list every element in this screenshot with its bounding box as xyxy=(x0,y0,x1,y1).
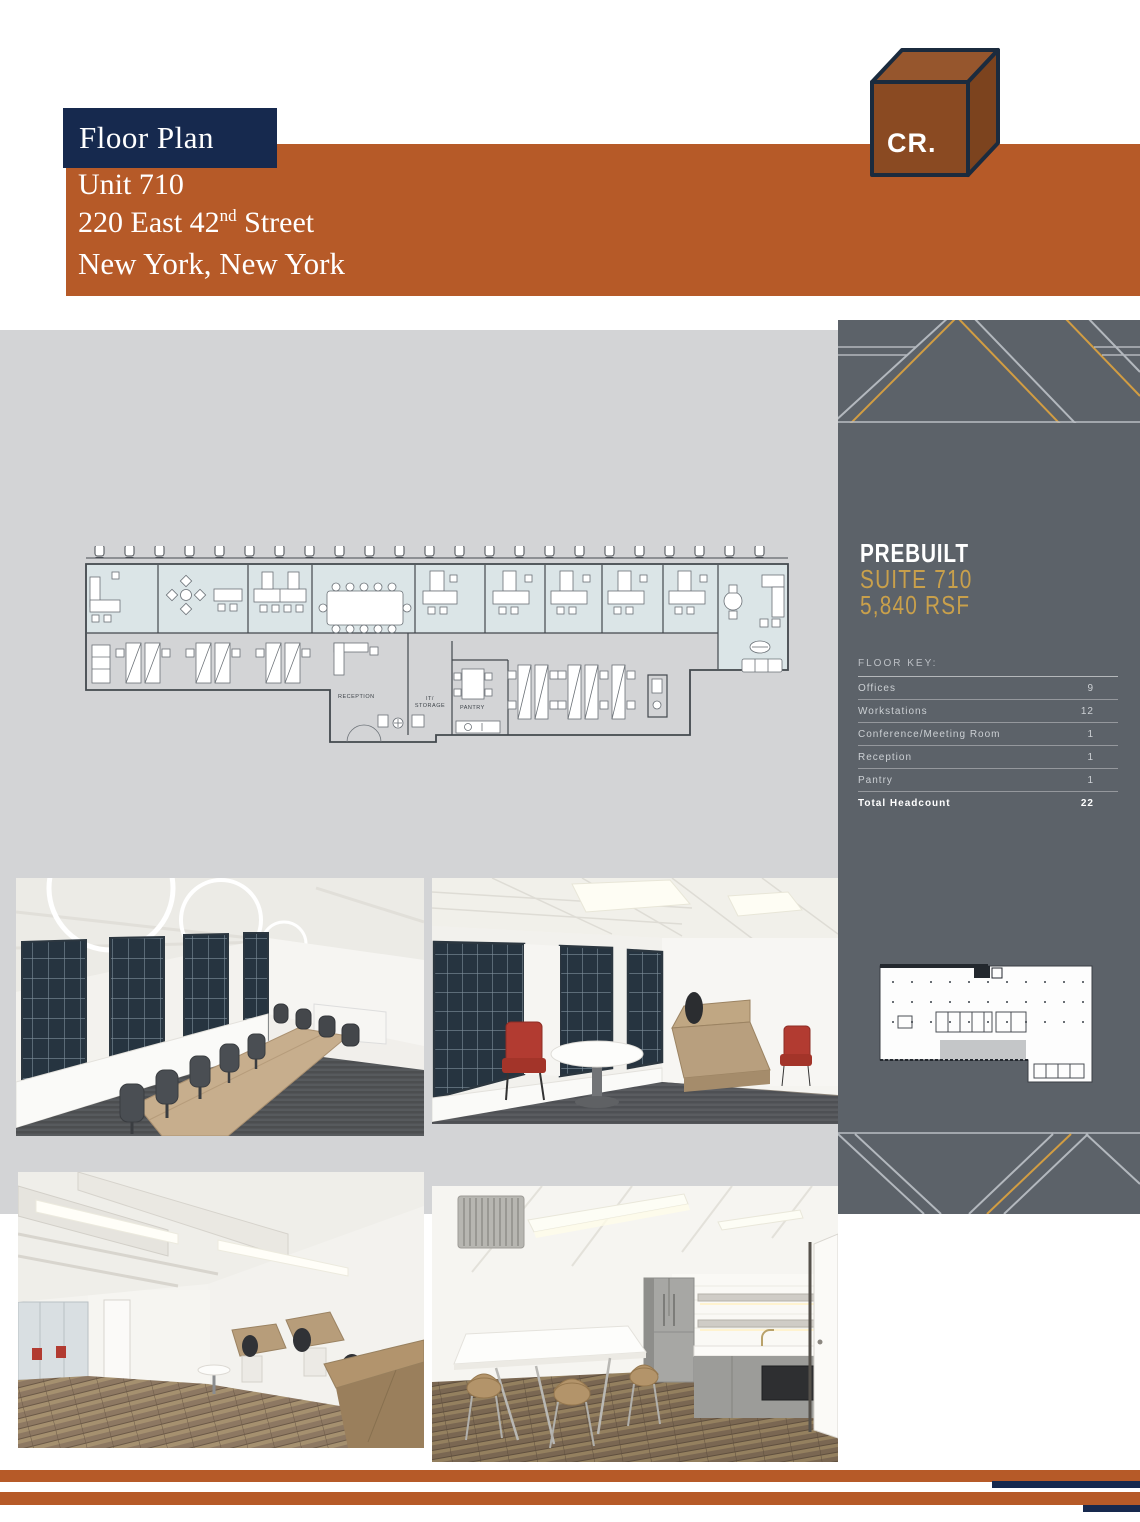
task-chair xyxy=(685,992,703,1024)
glass-wall xyxy=(18,1302,88,1380)
suite-title-block: PREBUILT SUITE 710 5,840 RSF xyxy=(860,540,973,618)
unit-label: Unit 710 xyxy=(78,168,184,202)
photo-open-workspace xyxy=(18,1172,424,1448)
logo-text: CR. xyxy=(887,128,937,158)
prebuilt-label: PREBUILT xyxy=(860,540,973,566)
it-storage-label-2: STORAGE xyxy=(415,703,445,709)
photo-private-office xyxy=(432,878,838,1124)
red-chair-small xyxy=(32,1348,42,1360)
footer-stripe-2 xyxy=(0,1492,1140,1505)
air-vent xyxy=(458,1196,524,1248)
floor-key-total-row: Total Headcount22 xyxy=(858,792,1118,814)
suite-info-sidebar: PREBUILT SUITE 710 5,840 RSF FLOOR KEY: … xyxy=(838,320,1140,1214)
ordinal-suffix: nd xyxy=(220,206,237,225)
street-address: 220 East 42nd Street xyxy=(78,206,314,240)
red-chair-small xyxy=(56,1346,66,1358)
sidebar-top-pattern xyxy=(838,320,1140,423)
suite-rsf: 5,840 RSF xyxy=(860,592,973,618)
flyer-page: Unit 710 220 East 42nd Street New York, … xyxy=(0,0,1140,1522)
suite-710-highlight xyxy=(940,1040,1026,1060)
floor-key-row-conference: Conference/Meeting Room1 xyxy=(858,723,1118,746)
workstations-middle xyxy=(508,665,635,719)
footer-navy-bar-2 xyxy=(1083,1505,1140,1512)
floor-key-header: FLOOR KEY: xyxy=(858,658,1118,677)
floor-key-row-offices: Offices9 xyxy=(858,677,1118,700)
building-key-plate xyxy=(878,960,1100,1090)
page-title: Floor Plan xyxy=(63,108,277,168)
door xyxy=(810,1234,838,1438)
company-logo-cube: CR. xyxy=(860,40,1010,185)
refrigerator xyxy=(644,1278,694,1382)
floor-key-row-reception: Reception1 xyxy=(858,746,1118,769)
floor-plan-drawing: RECEPTION IT/ STORAGE PANTRY xyxy=(78,545,798,755)
footer-navy-bar-1 xyxy=(992,1481,1140,1488)
photo-pantry xyxy=(432,1186,838,1462)
suite-number: SUITE 710 xyxy=(860,566,973,592)
pantry-label: PANTRY xyxy=(460,705,485,711)
it-storage-label-1: IT/ xyxy=(426,696,434,702)
photo-conference-room xyxy=(16,878,424,1136)
floor-key-row-workstations: Workstations12 xyxy=(858,700,1118,723)
floor-key-table: FLOOR KEY: Offices9 Workstations12 Confe… xyxy=(858,658,1118,814)
pantry-furniture xyxy=(454,669,500,733)
window-mullions xyxy=(92,546,784,558)
floor-key-row-pantry: Pantry1 xyxy=(858,769,1118,792)
door xyxy=(104,1300,130,1382)
reception-area xyxy=(334,643,403,742)
reception-label: RECEPTION xyxy=(338,694,375,700)
footer-stripe-1 xyxy=(0,1470,1140,1482)
workstations-left xyxy=(92,643,310,683)
sidebar-bottom-pattern xyxy=(838,1132,1140,1214)
city-label: New York, New York xyxy=(78,246,345,282)
